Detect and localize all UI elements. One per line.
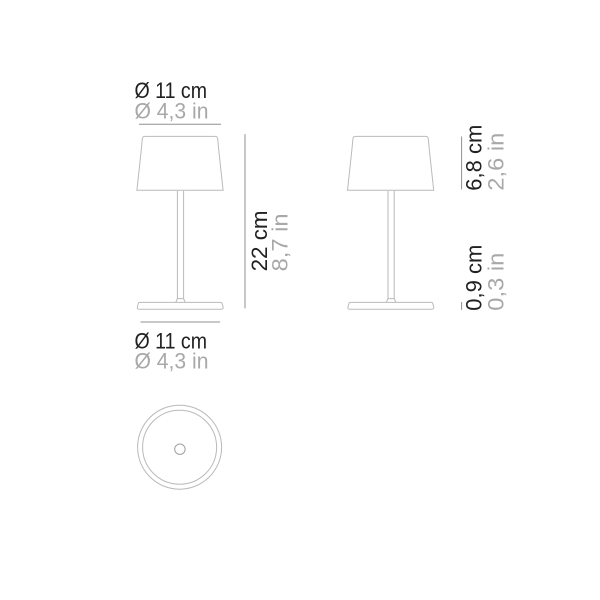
svg-text:8,7 in: 8,7 in bbox=[268, 213, 293, 271]
svg-text:Ø 4,3 in: Ø 4,3 in bbox=[135, 349, 209, 374]
svg-text:Ø 4,3 in: Ø 4,3 in bbox=[135, 99, 209, 124]
svg-text:2,6 in: 2,6 in bbox=[484, 133, 509, 191]
svg-text:0,3 in: 0,3 in bbox=[484, 253, 509, 311]
